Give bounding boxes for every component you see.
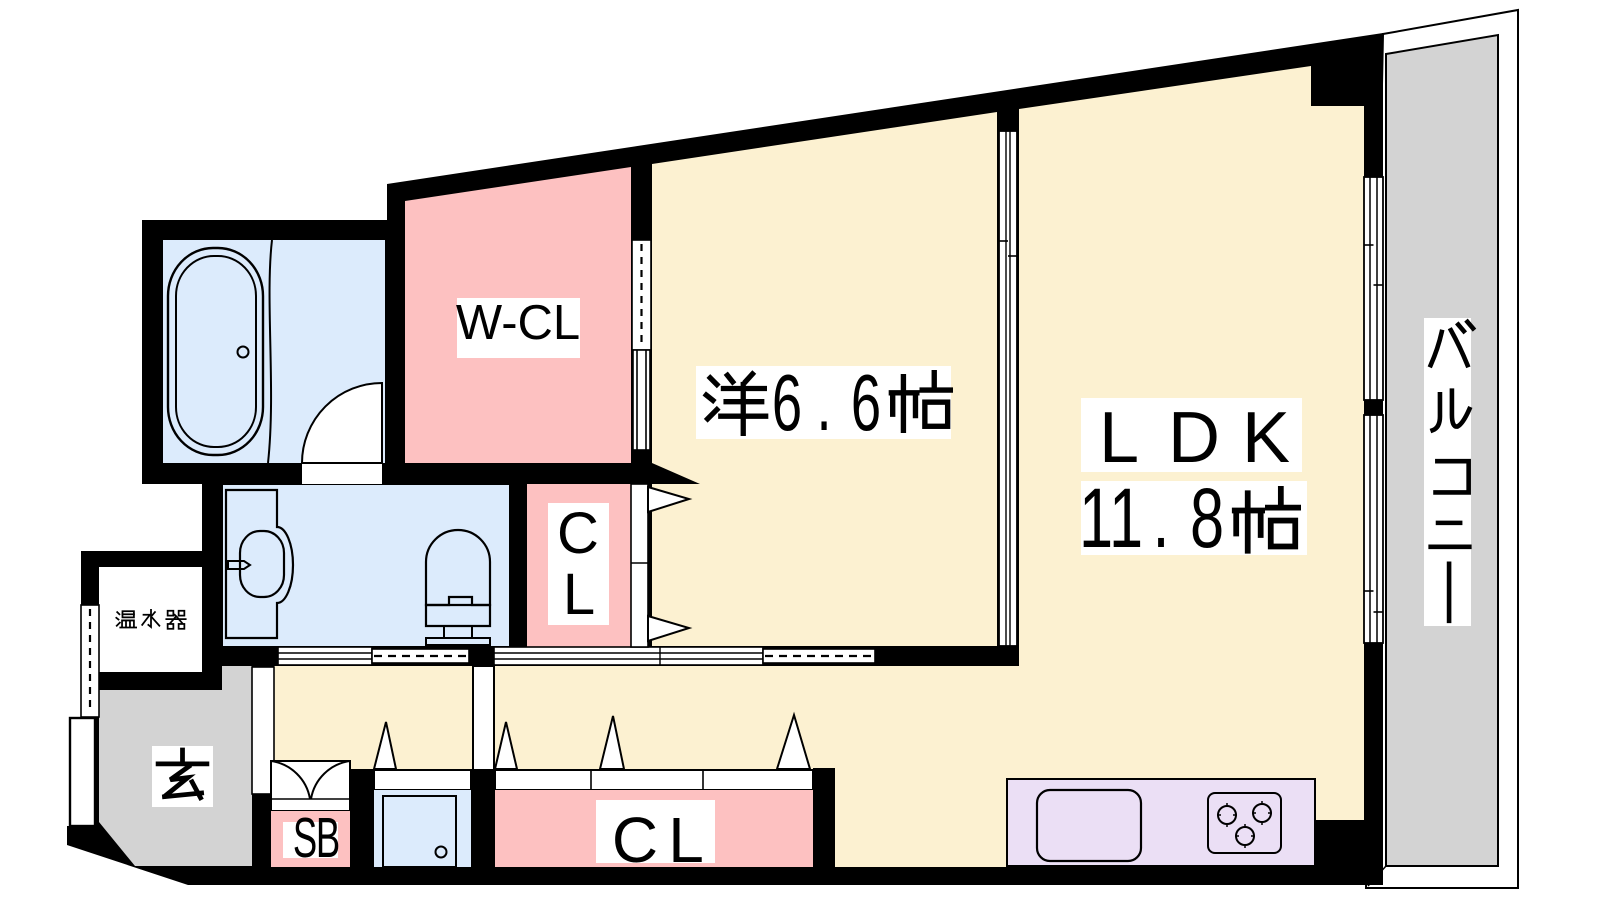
svg-text:1: 1 — [1079, 470, 1113, 565]
svg-text:C: C — [612, 804, 658, 876]
svg-text:L: L — [1099, 398, 1139, 478]
svg-text:8: 8 — [1190, 470, 1224, 565]
svg-text:1: 1 — [1109, 470, 1143, 565]
svg-text:.: . — [1152, 470, 1169, 565]
svg-text:S: S — [293, 807, 317, 870]
svg-text:.: . — [816, 359, 831, 448]
svg-text:6: 6 — [851, 359, 881, 448]
svg-text:K: K — [1242, 398, 1290, 478]
svg-text:B: B — [316, 807, 340, 870]
svg-text:C: C — [557, 501, 599, 566]
svg-text:L: L — [668, 804, 704, 876]
svg-text:W-CL: W-CL — [456, 296, 580, 350]
svg-text:D: D — [1168, 398, 1220, 478]
svg-text:L: L — [563, 562, 595, 627]
svg-text:6: 6 — [772, 359, 802, 448]
